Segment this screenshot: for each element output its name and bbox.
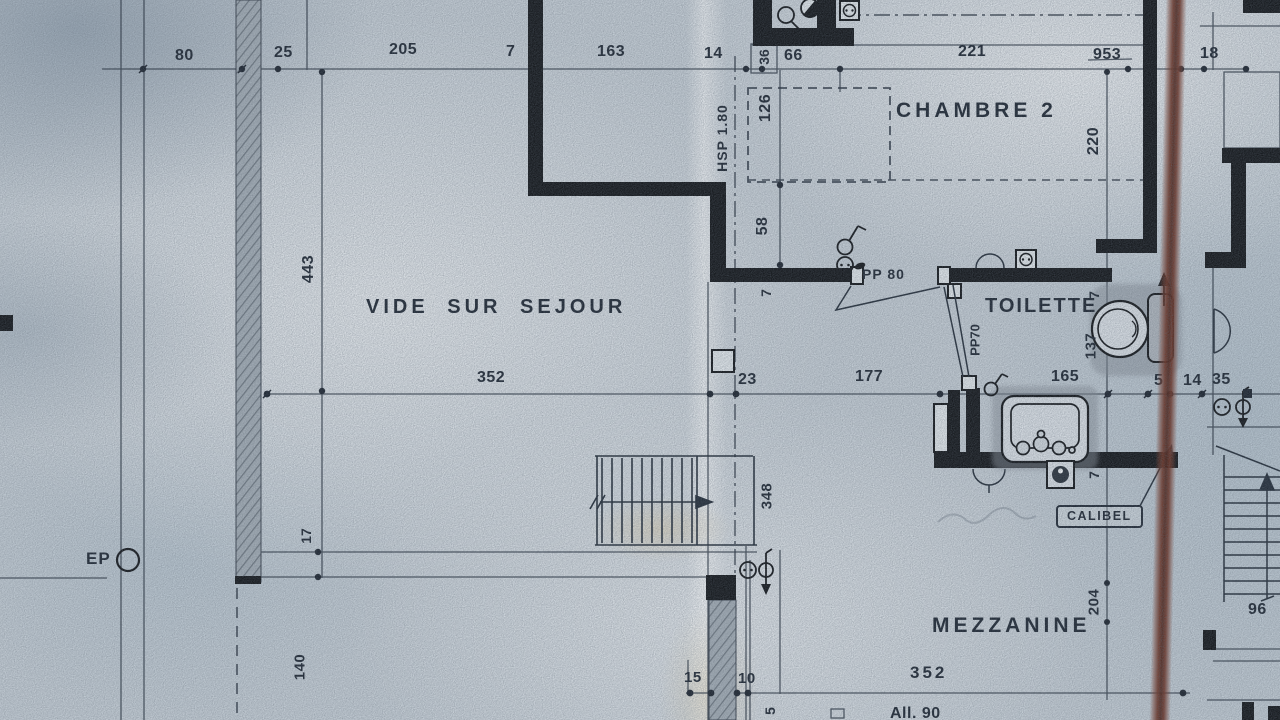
dim-17: 17: [299, 528, 313, 544]
dim-443: 443: [301, 255, 317, 283]
dim-7-top: 7: [506, 44, 515, 60]
dim-352-bottom: 352: [910, 664, 947, 681]
dim-177: 177: [855, 369, 883, 385]
dim-7-toilette: 7: [1087, 291, 1101, 299]
label-layer: 80 25 205 7 163 14 36 66 221 953 18 126 …: [0, 0, 1280, 720]
dim-7-sink: 7: [1087, 471, 1101, 479]
dim-10: 10: [738, 671, 756, 686]
dim-163: 163: [597, 44, 625, 60]
dim-80: 80: [175, 48, 194, 64]
dim-5-partial: 5: [763, 707, 777, 715]
dim-140: 140: [293, 654, 308, 681]
dim-35: 35: [1212, 372, 1231, 388]
room-label-chambre2: CHAMBRE 2: [896, 100, 1057, 121]
dim-220: 220: [1086, 127, 1102, 155]
door-label-pp80: PP 80: [862, 267, 905, 281]
dim-953: 953: [1093, 47, 1121, 63]
floor-plan-sheet: 80 25 205 7 163 14 36 66 221 953 18 126 …: [0, 0, 1280, 720]
note-hsp: HSP 1.80: [715, 104, 729, 172]
room-label-mezzanine: MEZZANINE: [932, 615, 1091, 636]
note-ep: EP: [86, 550, 111, 567]
dim-348: 348: [760, 483, 775, 510]
dim-221: 221: [958, 44, 986, 60]
dim-25: 25: [274, 45, 293, 61]
note-calibel: CALIBEL: [1056, 505, 1143, 528]
dim-66: 66: [784, 48, 803, 64]
dim-18: 18: [1200, 46, 1219, 62]
dim-165: 165: [1051, 369, 1079, 385]
dim-137: 137: [1084, 333, 1099, 360]
dim-126: 126: [758, 94, 774, 122]
dim-36: 36: [757, 49, 771, 65]
dim-204: 204: [1087, 589, 1102, 616]
dim-96: 96: [1248, 602, 1267, 618]
dim-352-mid: 352: [477, 370, 505, 386]
door-label-pp70: PP70: [969, 324, 982, 356]
dim-15: 15: [684, 670, 702, 685]
dim-14-hidden: 14: [1183, 373, 1202, 389]
dim-205: 205: [389, 42, 417, 58]
room-label-toilette: TOILETTE: [985, 296, 1097, 316]
note-allege: All. 90: [890, 706, 941, 720]
dim-23: 23: [738, 372, 757, 388]
dim-58: 58: [755, 217, 771, 236]
dim-7-wall: 7: [759, 289, 773, 297]
dim-14: 14: [704, 46, 723, 62]
room-label-vide-sur-sejour: VIDE SUR SEJOUR: [366, 297, 626, 317]
